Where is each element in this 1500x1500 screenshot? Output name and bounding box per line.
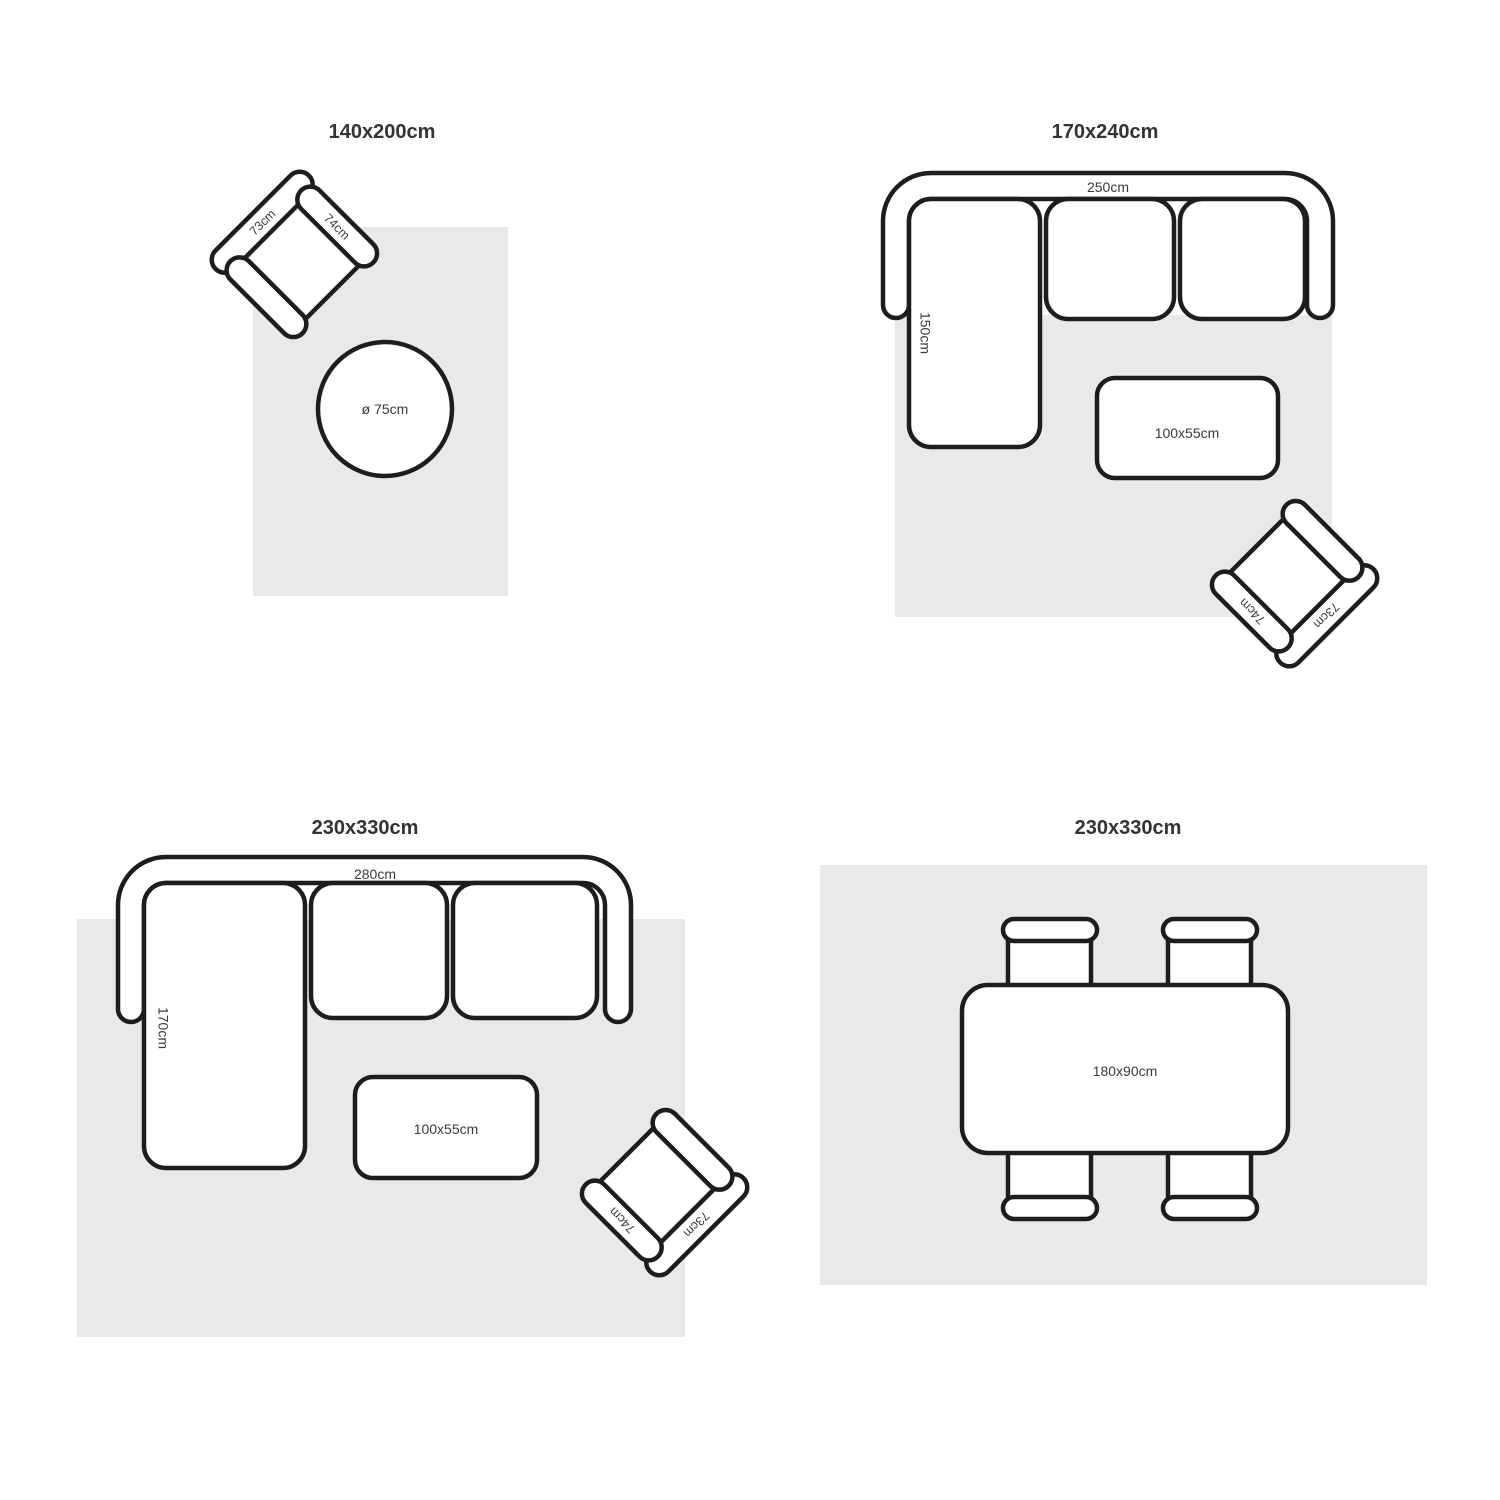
dining-chair-backrest (1163, 919, 1257, 941)
sofa-seat-cushion (453, 883, 597, 1018)
quadrant-230x330-dining: 230x330cm 180x90cm (820, 817, 1427, 1285)
sofa-seat-cushion (1046, 199, 1174, 319)
coffee-table-label: 100x55cm (1155, 425, 1220, 441)
dining-chair-seat (1008, 936, 1091, 988)
dining-chair-backrest (1163, 1197, 1257, 1219)
dining-chair-seat (1168, 1150, 1251, 1202)
coffee-table-label: 100x55cm (414, 1121, 479, 1137)
dining-chair (1003, 1150, 1097, 1219)
dining-chair (1163, 1150, 1257, 1219)
rug-size-title: 230x330cm (312, 817, 419, 839)
rug-size-title: 230x330cm (1075, 817, 1182, 839)
dining-chair-seat (1008, 1150, 1091, 1202)
sofa-chaise-label: 150cm (918, 312, 934, 354)
quadrant-230x330-living: 230x330cm 280cm 170cm 100x55cm 73cm 74cm (77, 817, 753, 1337)
sofa-chaise-label: 170cm (156, 1007, 172, 1049)
sofa-width-label: 280cm (354, 866, 396, 882)
quadrant-140x200: 140x200cm 73cm 74cm ø 75cm (206, 121, 508, 596)
sofa-seat-cushion (311, 883, 447, 1018)
sofa-width-label: 250cm (1087, 179, 1129, 195)
quadrant-170x240: 170x240cm 250cm 150cm 100x55cm 73cm 74cm (883, 121, 1383, 672)
dining-chair-backrest (1003, 919, 1097, 941)
round-side-table-label: ø 75cm (362, 401, 409, 417)
dining-chair-seat (1168, 936, 1251, 988)
dining-chair (1003, 919, 1097, 988)
rug-size-title: 140x200cm (329, 121, 436, 143)
size-guide-canvas: 140x200cm 73cm 74cm ø 75cm 170x240cm 250… (0, 0, 1500, 1500)
dining-chair-backrest (1003, 1197, 1097, 1219)
rug-size-guide: 140x200cm 73cm 74cm ø 75cm 170x240cm 250… (0, 0, 1500, 1500)
dining-table-label: 180x90cm (1093, 1063, 1158, 1079)
dining-chair (1163, 919, 1257, 988)
rug-size-title: 170x240cm (1052, 121, 1159, 143)
sofa-seat-cushion (1180, 199, 1305, 319)
